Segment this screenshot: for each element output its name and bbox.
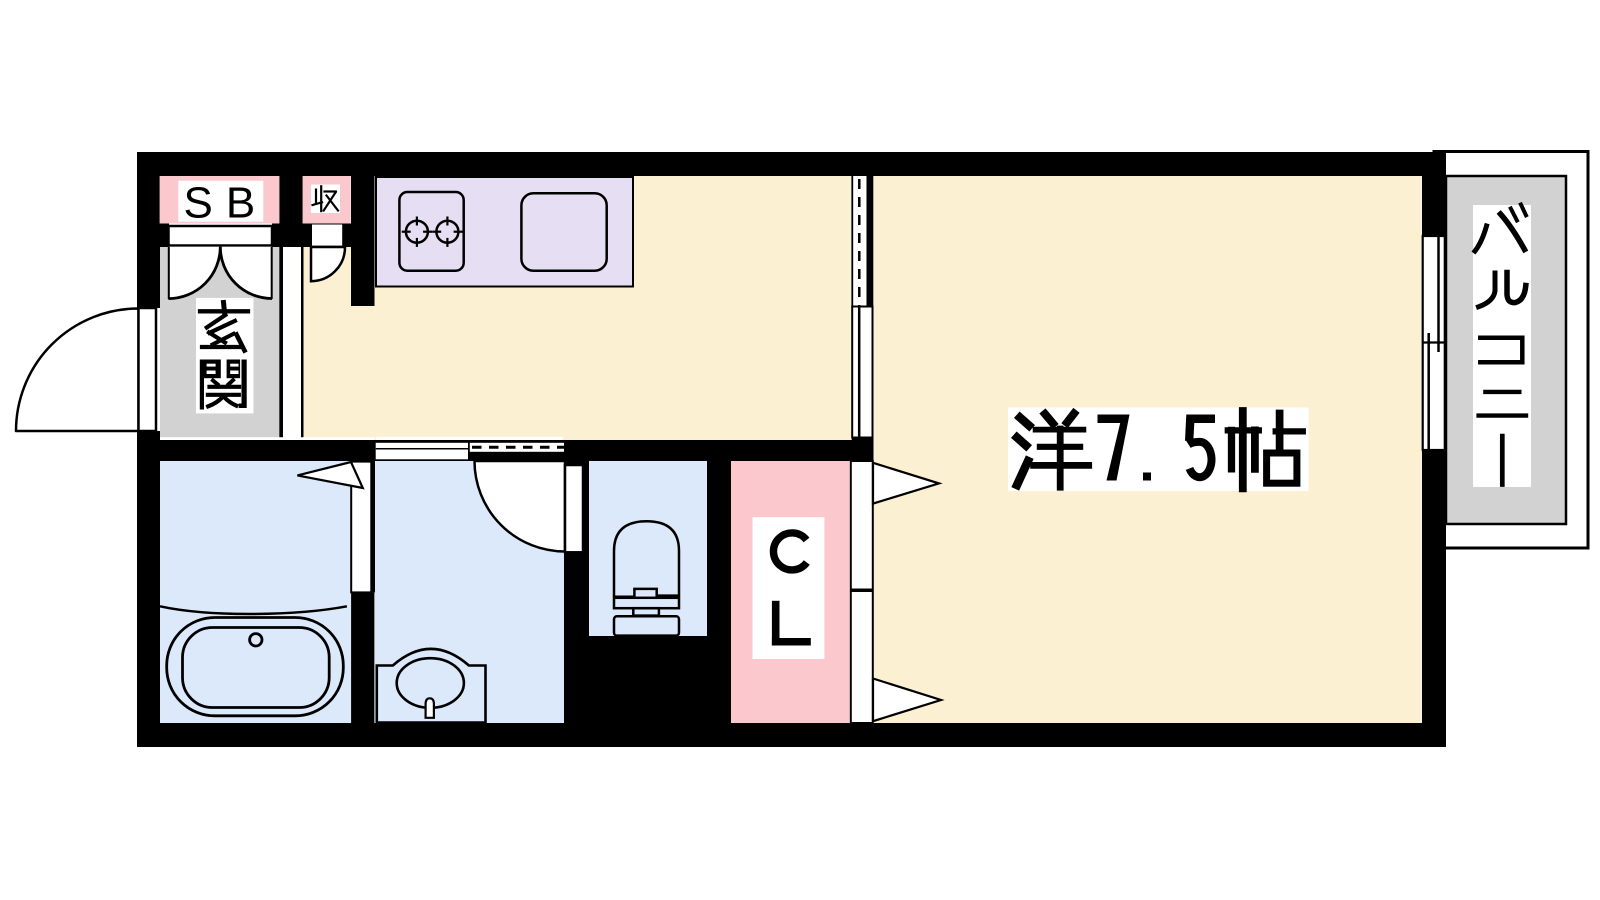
svg-text:SB: SB (184, 179, 269, 228)
